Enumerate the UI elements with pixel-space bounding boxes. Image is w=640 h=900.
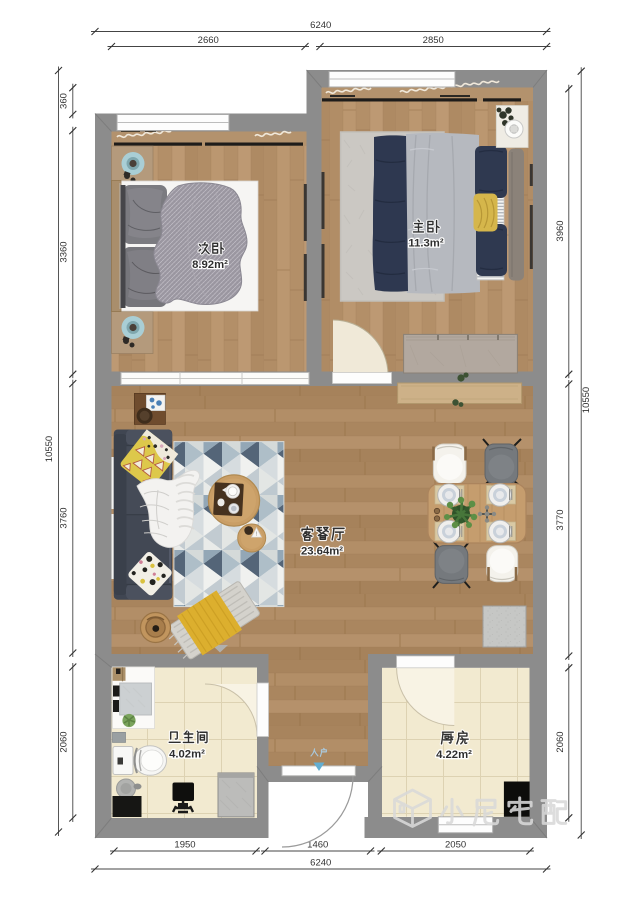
svg-text:6240: 6240 [310,20,331,31]
svg-text:8.92m²: 8.92m² [192,259,228,271]
svg-text:2850: 2850 [423,35,444,46]
svg-text:23.64m²: 23.64m² [301,546,343,558]
svg-text:1950: 1950 [174,840,195,851]
svg-text:2050: 2050 [445,840,466,851]
svg-text:2060: 2060 [555,731,566,752]
svg-text:11.3m²: 11.3m² [408,238,443,250]
svg-text:10550: 10550 [581,387,592,413]
svg-text:3770: 3770 [555,509,566,530]
svg-text:360: 360 [59,93,70,109]
svg-text:4.02m²: 4.02m² [169,749,205,761]
svg-text:4.22m²: 4.22m² [436,749,472,761]
svg-text:3360: 3360 [59,241,70,262]
svg-text:10550: 10550 [44,436,55,462]
svg-text:3760: 3760 [59,507,70,528]
svg-text:2660: 2660 [198,35,219,46]
svg-text:6240: 6240 [310,858,331,869]
svg-text:3960: 3960 [555,220,566,241]
svg-text:2060: 2060 [59,731,70,752]
